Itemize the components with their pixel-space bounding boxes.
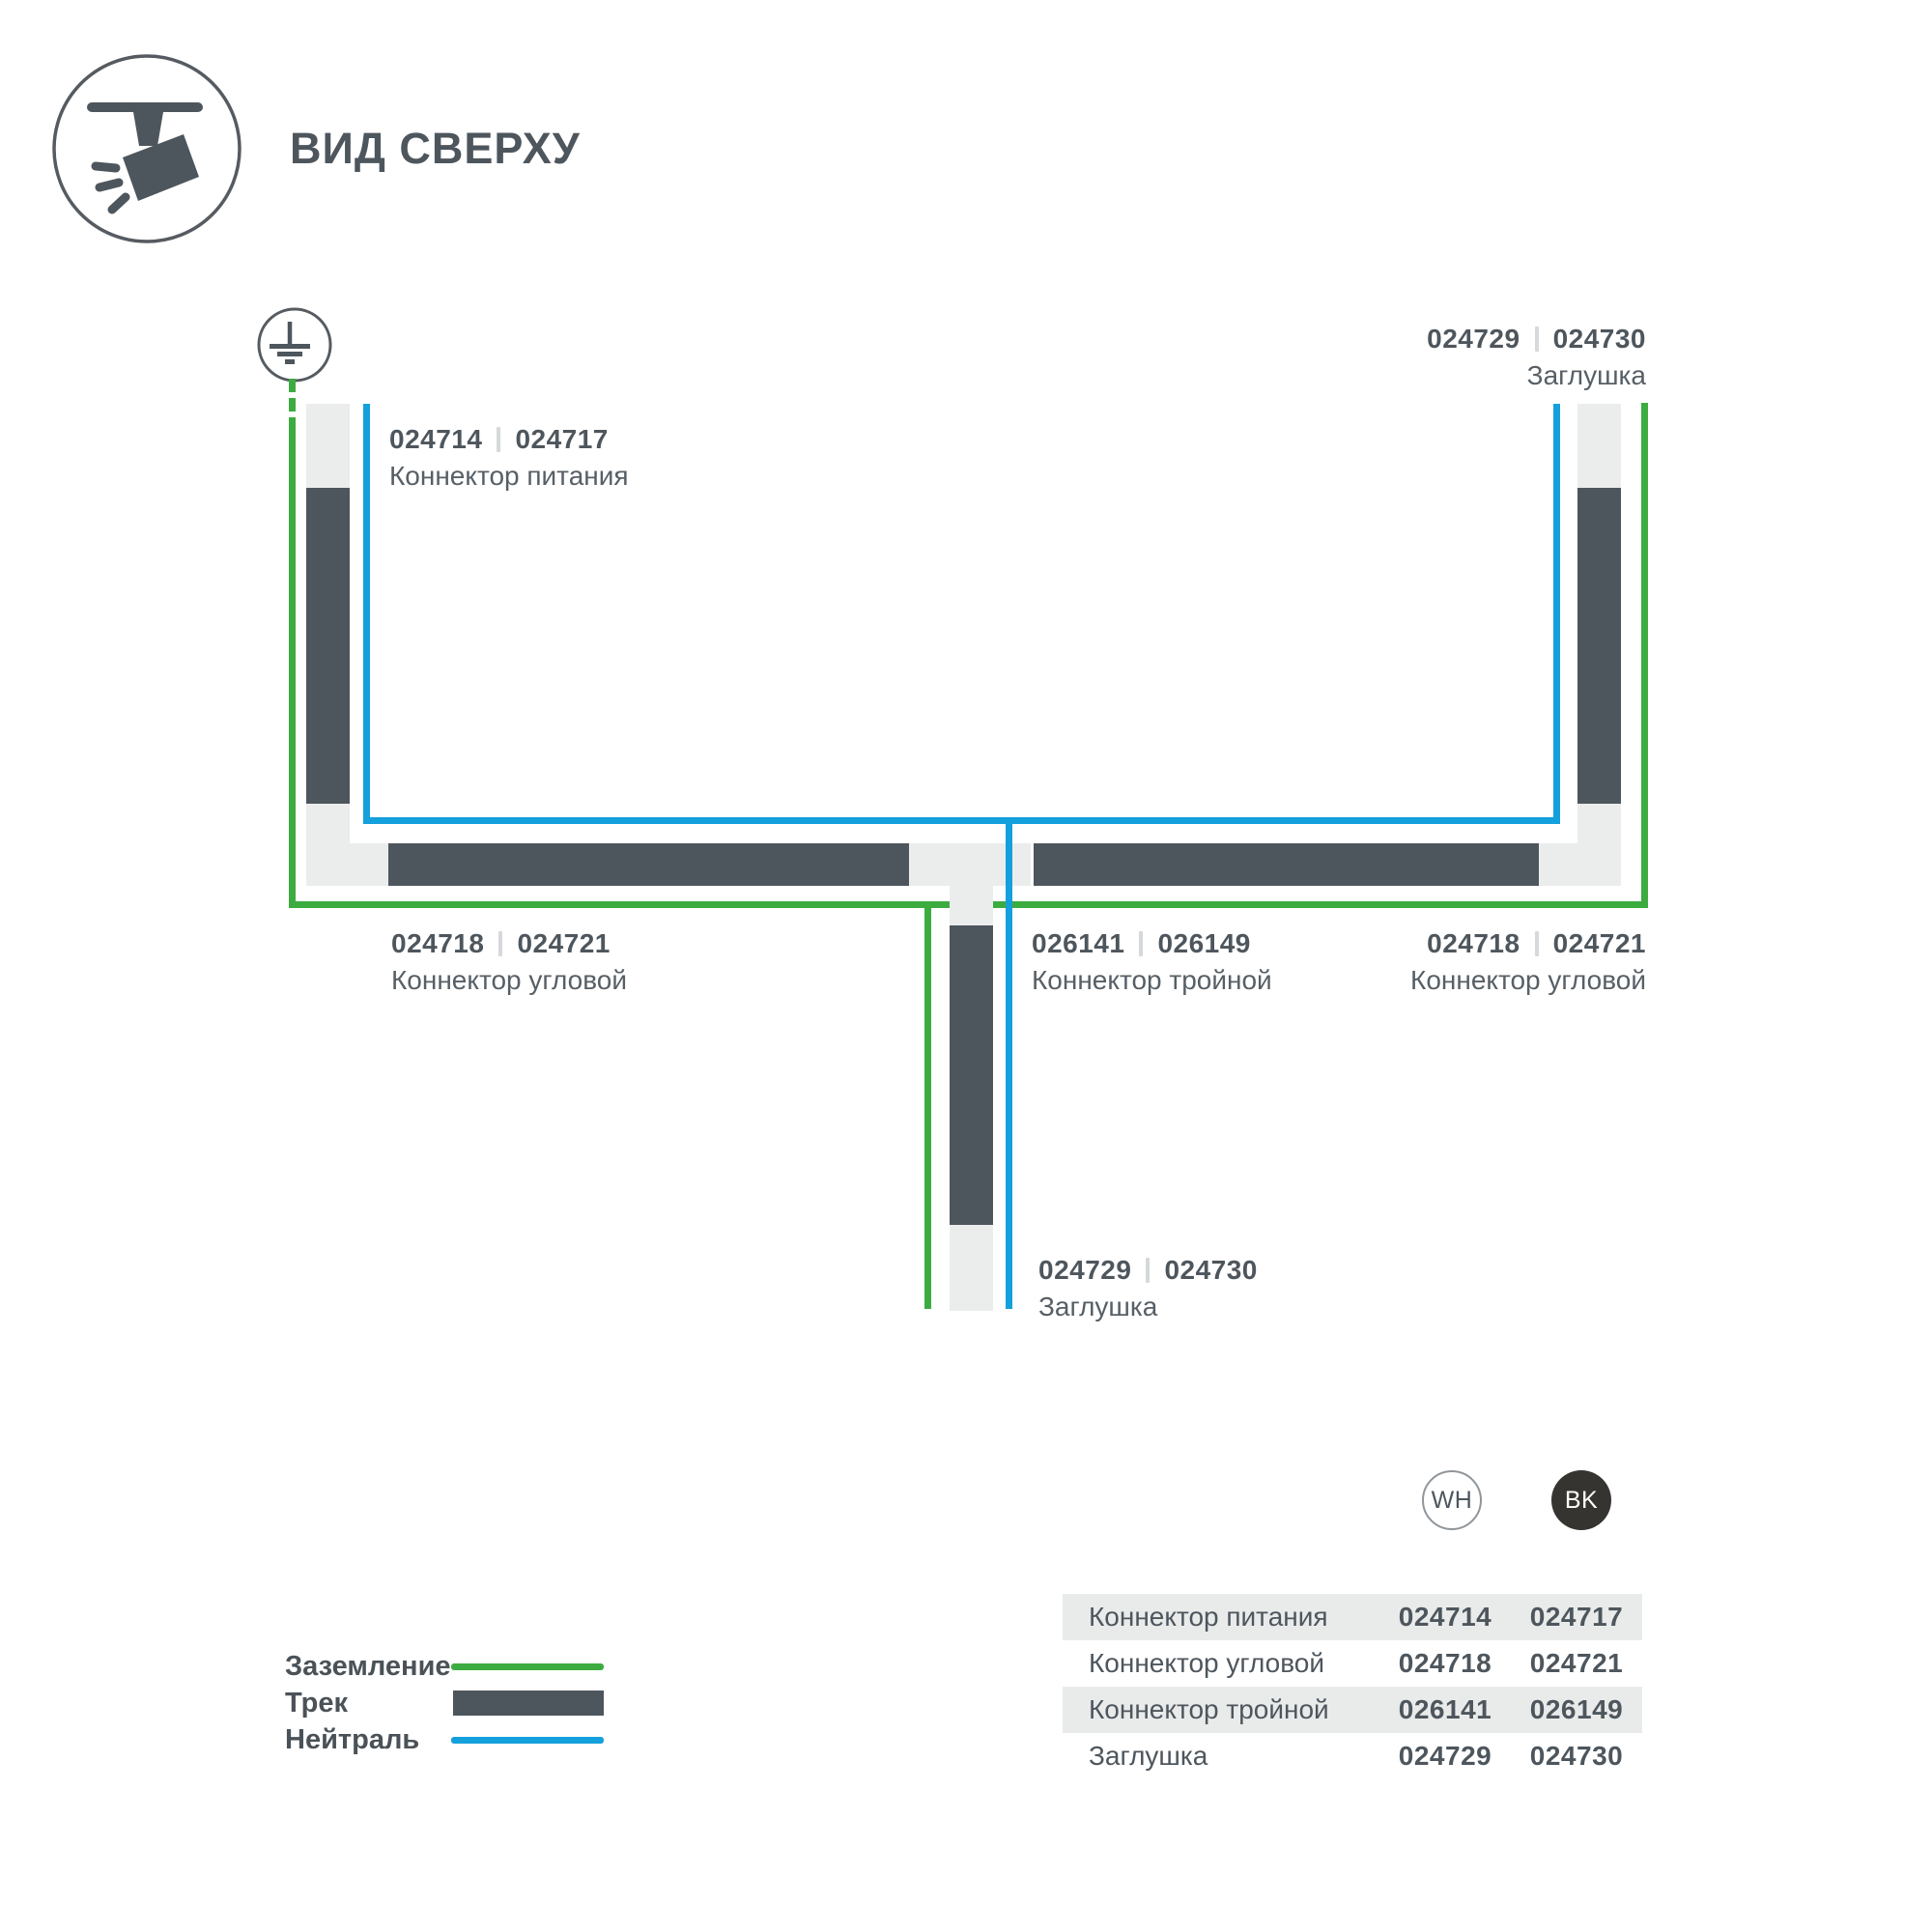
label-divider xyxy=(497,427,500,452)
ground-icon xyxy=(255,305,334,386)
label-divider xyxy=(1146,1258,1150,1283)
part-label-endcap-top: 024729024730 Заглушка xyxy=(1427,321,1646,394)
parts-table: Коннектор питания 024714 024717 Коннекто… xyxy=(1063,1594,1642,1779)
table-row: Коннектор угловой 024718 024721 xyxy=(1063,1640,1642,1687)
track-segment xyxy=(1034,843,1539,886)
ground-line xyxy=(289,398,296,412)
ground-line xyxy=(289,901,950,908)
neutral-line xyxy=(363,404,370,824)
bk-badge: BK xyxy=(1551,1470,1611,1530)
ground-line xyxy=(289,379,296,392)
legend-item-ground: Заземление xyxy=(285,1648,604,1685)
ground-line xyxy=(993,901,1648,908)
table-row: Коннектор питания 024714 024717 xyxy=(1063,1594,1642,1640)
table-row: Коннектор тройной 026141 026149 xyxy=(1063,1687,1642,1733)
ground-line xyxy=(924,908,931,1309)
table-row: Заглушка 024729 024730 xyxy=(1063,1733,1642,1779)
label-divider xyxy=(1535,931,1539,956)
page-title: ВИД СВЕРХУ xyxy=(290,124,581,174)
legend: Заземление Трек Нейтраль xyxy=(285,1648,604,1758)
t-connector xyxy=(950,886,993,925)
wh-badge: WH xyxy=(1422,1470,1482,1530)
corner-connector xyxy=(1577,804,1621,886)
track-endcap xyxy=(306,404,350,488)
label-divider xyxy=(498,931,502,956)
ground-line xyxy=(1641,403,1648,908)
neutral-line-swatch xyxy=(451,1737,604,1744)
track-segment xyxy=(388,843,909,886)
part-label-endcap-bottom: 024729024730 Заглушка xyxy=(1038,1252,1258,1325)
legend-item-track: Трек xyxy=(285,1685,604,1721)
label-divider xyxy=(1535,327,1539,352)
spotlight-icon xyxy=(50,51,243,244)
part-label-triple-connector: 026141026149 Коннектор тройной xyxy=(1032,925,1272,999)
neutral-line xyxy=(363,817,1560,824)
track-segment xyxy=(1577,488,1621,804)
track-segment xyxy=(950,925,993,1225)
track-endcap xyxy=(1577,404,1621,488)
neutral-line xyxy=(1006,817,1012,1309)
track-endcap xyxy=(950,1225,993,1311)
neutral-line xyxy=(1553,404,1560,824)
t-connector xyxy=(909,843,1031,886)
ground-line xyxy=(289,417,296,908)
label-divider xyxy=(1139,931,1143,956)
track-swatch xyxy=(453,1690,604,1716)
part-label-corner-right: 024718024721 Коннектор угловой xyxy=(1410,925,1646,999)
legend-item-neutral: Нейтраль xyxy=(285,1721,604,1758)
part-label-corner-left: 024718024721 Коннектор угловой xyxy=(391,925,627,999)
corner-connector xyxy=(306,843,388,886)
part-label-power-connector: 024714024717 Коннектор питания xyxy=(389,421,629,495)
track-segment xyxy=(306,488,350,804)
ground-line-swatch xyxy=(451,1663,604,1670)
